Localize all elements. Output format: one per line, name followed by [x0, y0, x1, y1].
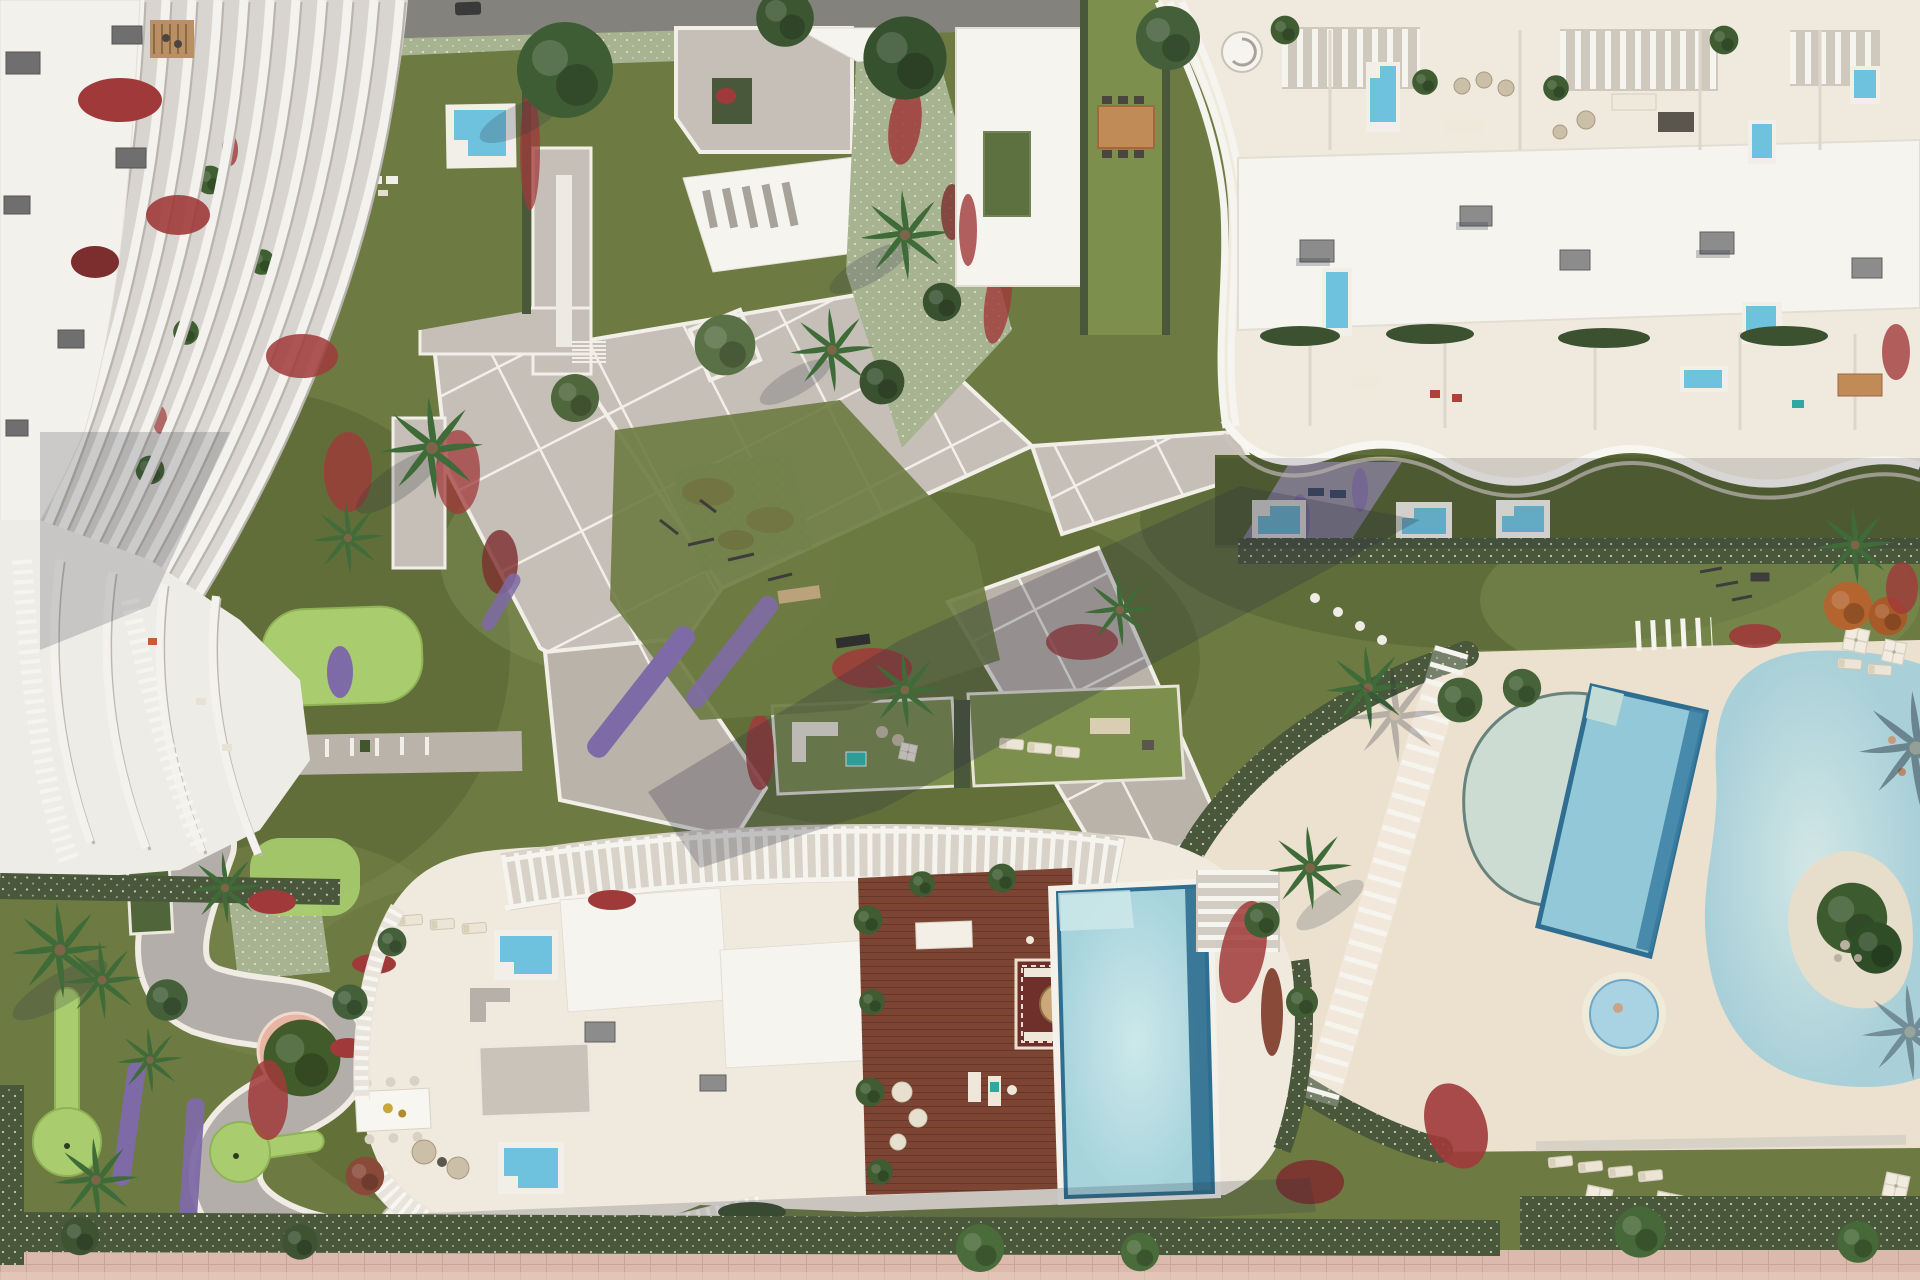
car	[455, 2, 481, 16]
swimmer	[1613, 1003, 1623, 1013]
jacuzzi	[1582, 972, 1666, 1056]
right-building	[1158, 0, 1920, 498]
lagoon-pool	[1705, 651, 1920, 1088]
aerial-render	[0, 0, 1920, 1280]
scene-canvas	[0, 0, 1920, 1280]
rooftop-infinity-pool	[1048, 878, 1221, 1205]
roof-pergola	[150, 20, 194, 58]
outdoor-dining-table	[1098, 106, 1154, 148]
green-roof-box	[984, 132, 1030, 216]
spiral-stair	[1222, 32, 1262, 72]
